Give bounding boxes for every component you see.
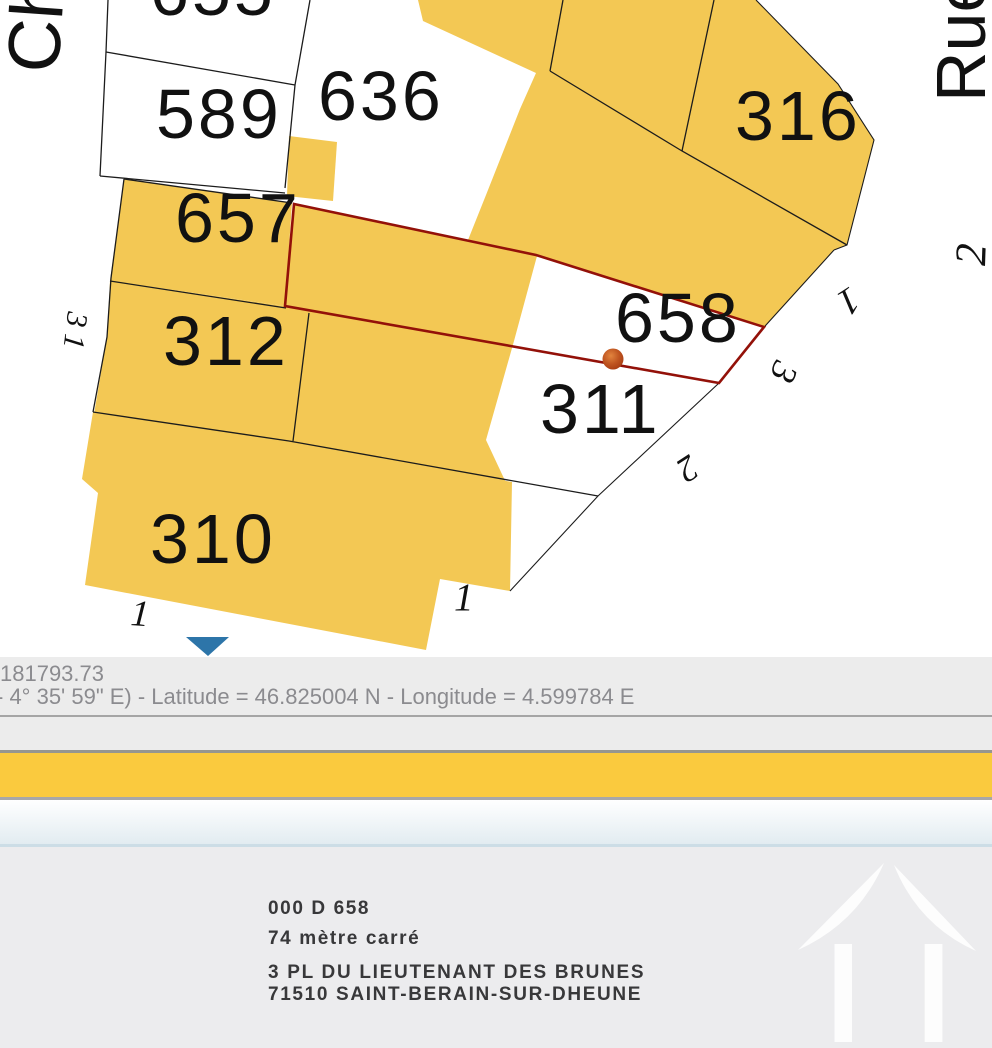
svg-text:2: 2	[946, 243, 992, 267]
svg-text:1: 1	[129, 593, 150, 635]
svg-text:312: 312	[163, 302, 289, 380]
svg-text:658: 658	[615, 279, 741, 357]
svg-text:1: 1	[454, 576, 474, 619]
svg-text:Ch: Ch	[0, 0, 81, 75]
svg-text:Rue: Rue	[922, 0, 992, 102]
svg-text:589: 589	[156, 75, 282, 153]
svg-text:31: 31	[56, 309, 94, 358]
svg-text:310: 310	[150, 500, 276, 578]
svg-text:657: 657	[175, 179, 301, 257]
svg-text:316: 316	[735, 77, 861, 155]
svg-text:636: 636	[318, 57, 444, 135]
svg-text:655: 655	[150, 0, 276, 30]
svg-text:311: 311	[540, 370, 661, 448]
